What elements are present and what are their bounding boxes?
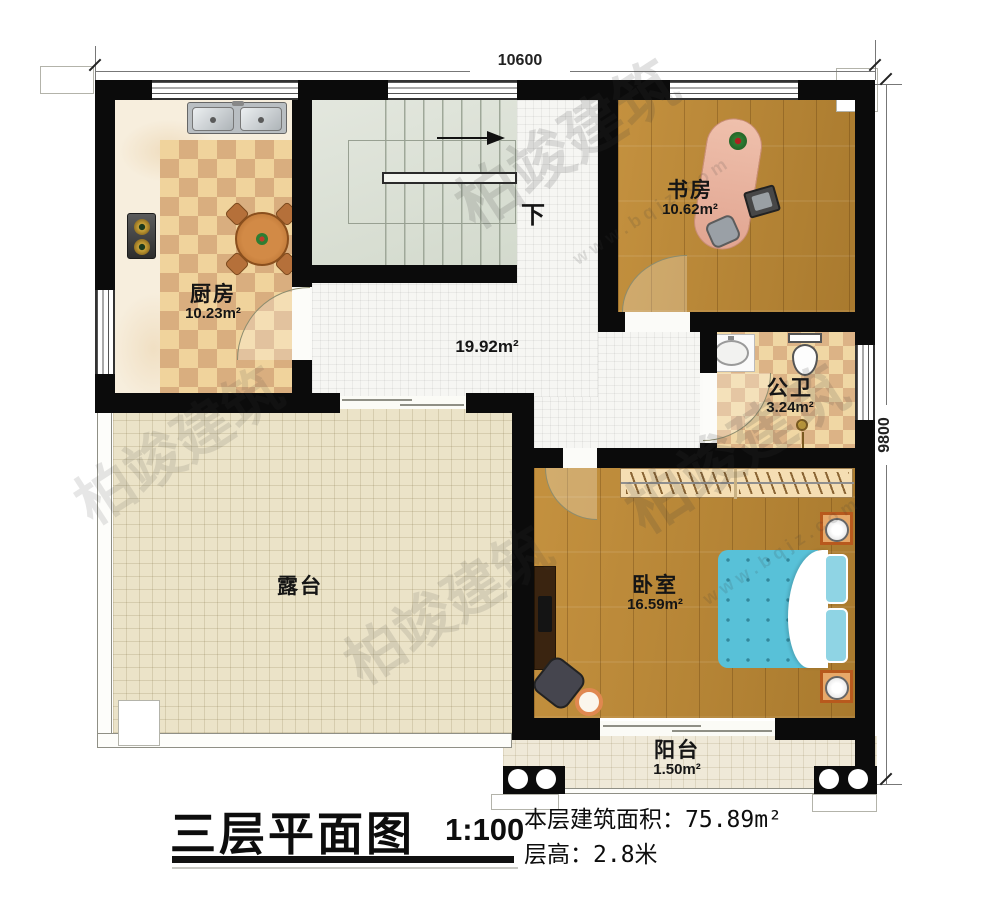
floor-height-label: 层高：: [524, 841, 593, 867]
balcony-column: [536, 769, 556, 789]
wall: [855, 80, 875, 345]
wall: [512, 397, 534, 740]
wardrobe: [620, 468, 853, 498]
study-area: 10.62m²: [630, 202, 750, 218]
bedroom-rug: [575, 688, 603, 716]
bathroom-label: 公卫 3.24m²: [730, 378, 850, 416]
hallway-floor-east: [598, 332, 700, 450]
lamp-icon: [825, 676, 849, 700]
plan-scale: 1:100: [445, 812, 524, 848]
stair-railing: [382, 172, 517, 184]
terrace-floor: [113, 397, 512, 733]
balcony-column: [848, 769, 868, 789]
extension-box-top-left: [40, 66, 94, 94]
hallway-area: 19.92m²: [427, 338, 547, 356]
title-block: 三层平面图 1:100 本层建筑面积：75.89m² 层高：2.8米: [0, 795, 1000, 905]
bathroom-area: 3.24m²: [730, 400, 850, 416]
wall: [512, 718, 600, 740]
wall: [598, 312, 625, 332]
wall: [700, 332, 717, 373]
shower-symbol: [796, 419, 808, 431]
wall: [690, 312, 875, 332]
toilet-tank: [788, 333, 822, 343]
wall: [312, 265, 517, 283]
balcony-sliding-door: [600, 721, 775, 736]
nightstand-bottom: [820, 670, 853, 703]
terrace-name: 露台: [240, 576, 360, 598]
wall: [292, 98, 312, 287]
stair-arrow-icon: [487, 131, 505, 145]
bedroom-monitor: [538, 596, 552, 632]
bedroom-name: 卧室: [595, 575, 715, 597]
title-underline-thin: [172, 867, 518, 869]
kitchen-name: 厨房: [153, 284, 273, 306]
study-plant: [729, 132, 747, 150]
terrace-parapet-left: [97, 400, 112, 748]
wall: [298, 80, 388, 100]
nightstand-top: [820, 512, 853, 545]
stove-burner-bottom: [134, 239, 150, 255]
sink-drain-right: [258, 117, 264, 123]
lamp-icon: [825, 518, 849, 542]
slider-panel: [672, 730, 772, 732]
stove: [127, 213, 156, 259]
balcony-label: 阳台 1.50m²: [617, 740, 737, 778]
balcony-area: 1.50m²: [617, 762, 737, 778]
bedroom-label: 卧室 16.59m²: [595, 575, 715, 613]
balcony-column: [819, 769, 839, 789]
kitchen-side-window: [95, 290, 115, 374]
wall: [534, 448, 563, 468]
sink-faucet: [232, 101, 244, 106]
toilet: [788, 333, 822, 379]
bedroom-door-gap: [563, 448, 597, 468]
floor-area-value: 75.89m²: [685, 807, 782, 833]
hallway-label: 19.92m²: [427, 338, 547, 356]
wall: [855, 420, 875, 770]
title-underline: [172, 856, 514, 863]
study-door-gap: [625, 312, 690, 332]
kitchen-label: 厨房 10.23m²: [153, 284, 273, 322]
balcony-name: 阳台: [617, 740, 737, 762]
hallway-floor-south: [534, 397, 598, 450]
stair-arrow-line: [437, 137, 489, 139]
dimension-top-value: 10600: [470, 52, 570, 72]
slider-panel: [400, 404, 464, 406]
shower-stem: [802, 432, 804, 448]
stairs-direction-label: 下: [512, 203, 556, 228]
terrace-sliding-door: [340, 396, 466, 409]
bathroom-name: 公卫: [730, 378, 850, 400]
wall: [775, 718, 855, 740]
slider-panel: [342, 399, 412, 401]
kitchen-window: [152, 80, 298, 100]
dining-set: [226, 203, 298, 275]
bed-pillow-bottom: [824, 608, 848, 663]
floor-plan: 10600 9800 厨房 10.23m² 书房 10.62m² 公卫 3.24…: [0, 0, 1000, 914]
extension-line: [875, 40, 876, 80]
wall: [598, 98, 618, 330]
wardrobe-divider: [734, 469, 737, 499]
bathroom-window: [855, 345, 875, 420]
stair-window: [388, 80, 517, 100]
bed-pillow-top: [824, 554, 848, 604]
wardrobe-rod: [621, 482, 854, 484]
sink-drain-left: [210, 117, 216, 123]
bedroom-area: 16.59m²: [595, 597, 715, 613]
stove-burner-top: [134, 219, 150, 235]
study-label: 书房 10.62m²: [630, 180, 750, 218]
floor-area-line: 本层建筑面积：75.89m²: [524, 800, 782, 834]
study-window: [670, 80, 798, 100]
wall: [95, 393, 340, 413]
kitchen-sink: [187, 102, 287, 134]
basin-bowl: [714, 340, 749, 366]
dimension-right-value: 9800: [876, 405, 896, 465]
floor-area-label: 本层建筑面积：: [524, 806, 685, 832]
stairs-down-text: 下: [512, 203, 556, 228]
computer-screen: [751, 192, 772, 211]
table-centerpiece: [256, 233, 268, 245]
toilet-bowl: [792, 344, 818, 376]
kitchen-area: 10.23m²: [153, 306, 273, 322]
plan-title: 三层平面图: [170, 798, 415, 864]
wall: [517, 80, 670, 100]
floor-height-value: 2.8米: [593, 842, 658, 868]
study-name: 书房: [630, 180, 750, 202]
slider-panel: [603, 725, 701, 727]
wall: [95, 80, 115, 290]
balcony-column: [508, 769, 528, 789]
floor-height-line: 层高：2.8米: [524, 835, 658, 869]
wall: [292, 360, 312, 397]
basin-faucet: [728, 336, 734, 340]
terrace-corner-post: [118, 700, 160, 746]
wall: [597, 448, 875, 468]
terrace-label: 露台: [240, 576, 360, 598]
